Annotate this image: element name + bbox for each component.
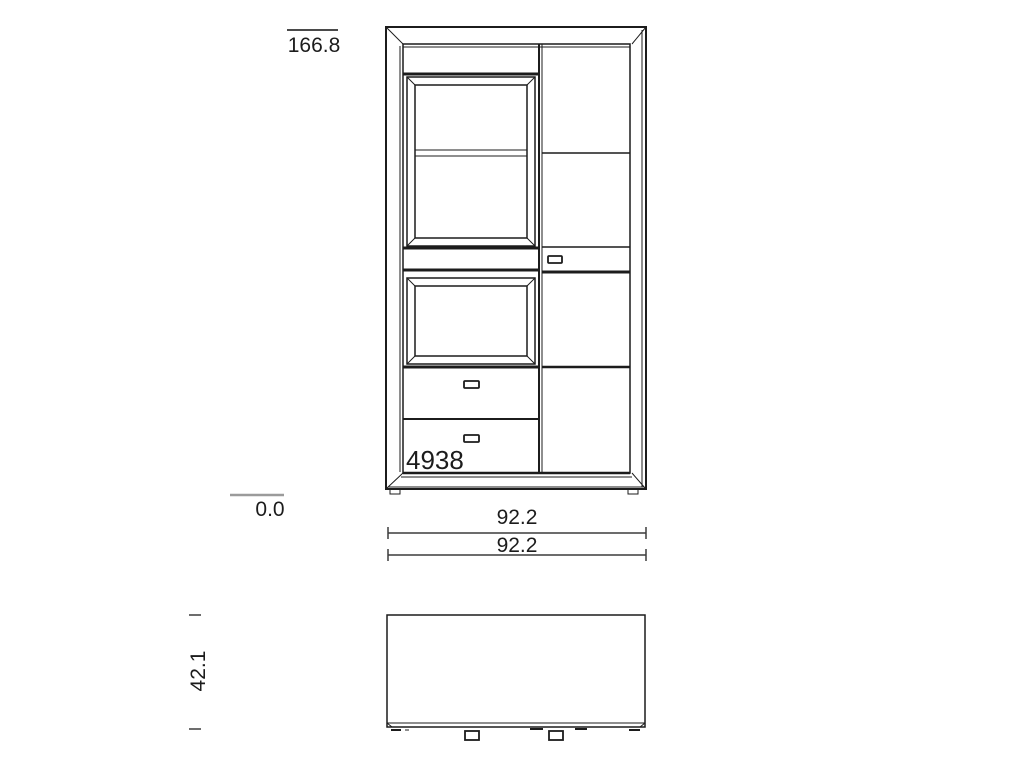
dimension-total-height: 166.8	[287, 30, 340, 57]
drawer-handle-top-icon	[465, 731, 479, 740]
upper-glass-door	[403, 74, 539, 248]
depth-label: 42.1	[187, 651, 210, 692]
right-door	[542, 153, 630, 367]
front-view: 4938	[386, 27, 646, 494]
top-view-feet	[391, 729, 640, 730]
width-upper-label: 92.2	[497, 506, 538, 529]
drawer-handle-icon	[464, 381, 479, 388]
top-view	[387, 615, 645, 740]
width-lower-label: 92.2	[497, 534, 538, 557]
drawer-lower: 4938	[406, 435, 479, 475]
drawer-upper	[403, 381, 539, 419]
drawing-canvas: 4938 166.8 0.0 92.2 92.2 42.1	[0, 0, 1024, 768]
door-handle-icon	[548, 256, 562, 263]
drawer-handle-icon	[464, 435, 479, 442]
glass-shelf-line	[415, 150, 527, 156]
technical-drawing: 4938 166.8 0.0 92.2 92.2 42.1	[0, 0, 1024, 768]
lower-glass-door	[403, 278, 539, 367]
cabinet-outline	[386, 27, 646, 494]
door-handle-top-icon	[549, 731, 563, 740]
dimension-width-lower: 92.2	[388, 534, 646, 561]
total-height-label: 166.8	[288, 34, 341, 57]
dimension-depth: 42.1	[187, 615, 210, 729]
dimension-base-height: 0.0	[230, 495, 285, 521]
base-height-label: 0.0	[255, 498, 284, 521]
door-divider	[539, 44, 542, 473]
article-number: 4938	[406, 445, 464, 475]
